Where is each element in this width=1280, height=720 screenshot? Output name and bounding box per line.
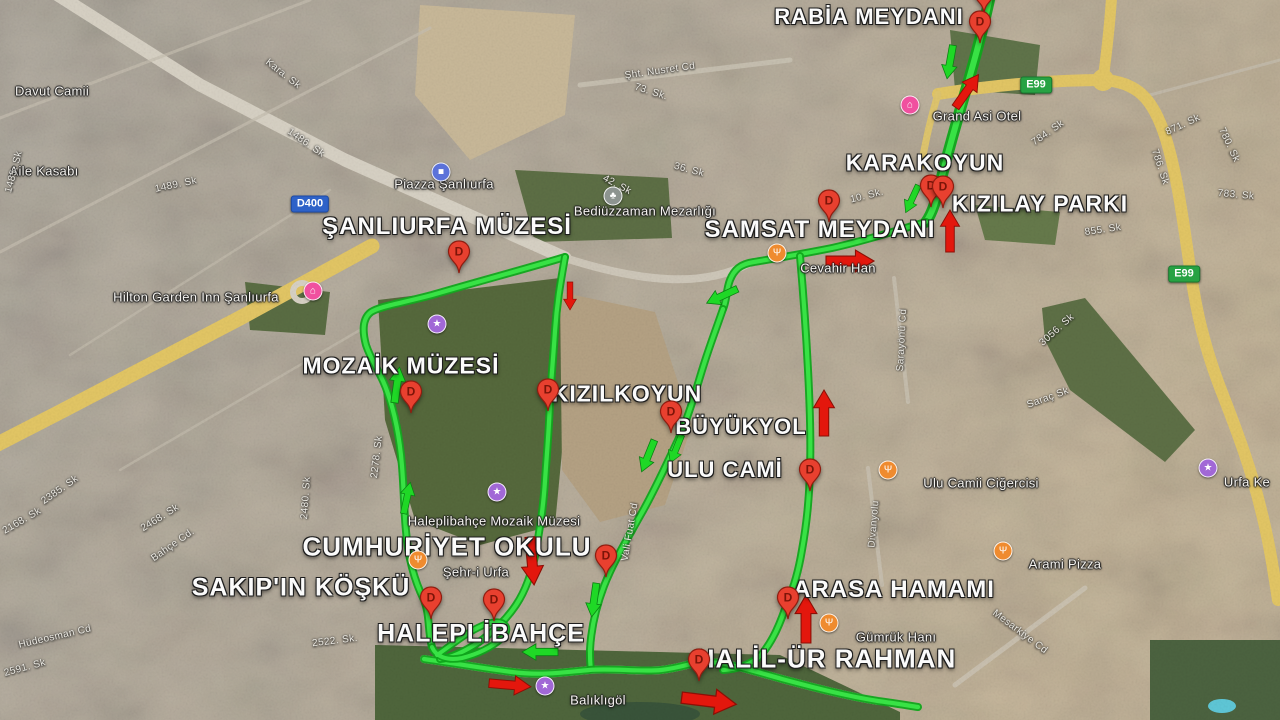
street-label: Saraç Sk: [1026, 385, 1071, 410]
svg-text:D: D: [976, 15, 985, 29]
map-marker-pin[interactable]: D: [594, 544, 618, 578]
map-marker-pin[interactable]: D: [447, 240, 471, 274]
street-label: 780. Sk: [1216, 126, 1241, 164]
hotel-icon[interactable]: ⌂: [901, 96, 920, 115]
restaurant-icon[interactable]: Ψ: [768, 244, 787, 263]
poi-label[interactable]: Davut Camii: [15, 84, 89, 99]
street-label: Kara. Sk: [263, 57, 303, 91]
street-label: 73. Sk.: [633, 82, 669, 103]
map-marker-pin[interactable]: D: [931, 175, 955, 209]
poi-label[interactable]: Grand Asi Otel: [933, 109, 1022, 124]
street-label: 36. Sk: [673, 161, 706, 180]
map-marker-pin[interactable]: D: [776, 586, 800, 620]
map-overlay: RABİA MEYDANIKARAKOYUNKIZILAY PARKISAMSA…: [0, 0, 1280, 720]
svg-text:D: D: [695, 653, 704, 667]
street-label: Hüdeosman Cd: [18, 623, 93, 650]
street-label: 1486. Sk: [285, 126, 326, 159]
street-label: 783. Sk: [1217, 188, 1255, 202]
street-label: 3056. Sk: [1037, 312, 1076, 349]
map-marker-pin[interactable]: D: [419, 586, 443, 620]
street-label: 2591. Sk: [3, 657, 47, 679]
map-marker-pin[interactable]: D: [536, 378, 560, 412]
road-badge-e99: E99: [1020, 77, 1052, 94]
place-label: ARASA HAMAMI: [793, 576, 995, 604]
street-label: Bahçe Cd.: [149, 526, 197, 564]
cemetery-icon[interactable]: ♣: [604, 187, 623, 206]
place-label: ŞANLIURFA MÜZESİ: [322, 213, 572, 241]
street-label: 2168. Sk: [1, 506, 43, 537]
svg-text:D: D: [939, 180, 948, 194]
place-label: SAKIP'IN KÖŞKÜ: [192, 574, 411, 603]
shopping-icon[interactable]: ■: [432, 163, 451, 182]
poi-label[interactable]: Arami Pizza: [1029, 557, 1102, 572]
svg-text:D: D: [544, 383, 553, 397]
place-label: KARAKOYUN: [846, 150, 1005, 177]
attraction-icon[interactable]: ★: [536, 677, 555, 696]
street-label: 786. Sk: [1149, 148, 1171, 186]
svg-text:D: D: [407, 385, 416, 399]
street-label: 2278. Sk: [369, 435, 385, 479]
svg-text:D: D: [806, 463, 815, 477]
place-label: RABİA MEYDANI: [774, 4, 963, 30]
restaurant-icon[interactable]: Ψ: [820, 614, 839, 633]
svg-text:D: D: [602, 549, 611, 563]
satellite-map[interactable]: RABİA MEYDANIKARAKOYUNKIZILAY PARKISAMSA…: [0, 0, 1280, 720]
map-marker-pin[interactable]: D: [687, 648, 711, 682]
map-marker-pin[interactable]: D: [659, 400, 683, 434]
map-marker-pin[interactable]: D: [798, 458, 822, 492]
street-label: Vali Fuat Cd: [619, 502, 640, 562]
place-label: MOZAİK MÜZESİ: [303, 353, 500, 380]
restaurant-icon[interactable]: Ψ: [879, 461, 898, 480]
attraction-icon[interactable]: ★: [428, 315, 447, 334]
place-label: KIZILAY PARKI: [952, 191, 1128, 218]
svg-text:D: D: [667, 405, 676, 419]
road-badge-e99: E99: [1168, 266, 1200, 283]
svg-text:D: D: [490, 593, 499, 607]
street-label: Divanyolu: [866, 500, 881, 548]
map-marker-pin[interactable]: D: [399, 380, 423, 414]
poi-label[interactable]: Ulu Camii Ciğercisi: [923, 476, 1039, 491]
map-marker-pin[interactable]: D: [817, 189, 841, 223]
restaurant-icon[interactable]: Ψ: [994, 542, 1013, 561]
street-label: Şht. Nusret Cd: [624, 61, 696, 82]
svg-text:D: D: [455, 245, 464, 259]
place-label: ULU CAMİ: [667, 457, 783, 483]
street-label: 2468. Sk: [139, 502, 181, 534]
street-label: Sarayönü Cd: [895, 308, 909, 371]
street-label: 10. Sk.: [849, 187, 885, 206]
poi-label[interactable]: Şehr-i Urfa: [443, 565, 509, 580]
street-label: Mesarkiye Cd: [990, 608, 1049, 656]
attraction-icon[interactable]: ★: [1199, 459, 1218, 478]
street-label: 855. Sk: [1084, 222, 1122, 238]
street-label: 2385. Sk: [39, 473, 80, 506]
poi-label[interactable]: Bediüzzaman Mezarlığı: [574, 204, 716, 219]
map-marker-pin[interactable]: D: [968, 10, 992, 44]
poi-label[interactable]: Cevahir Han: [800, 261, 876, 276]
road-badge-d400: D400: [291, 196, 329, 213]
svg-text:D: D: [825, 194, 834, 208]
svg-text:D: D: [427, 591, 436, 605]
poi-label[interactable]: Haleplibahçe Mozaik Müzesi: [408, 514, 581, 529]
poi-label[interactable]: Balıklıgöl: [570, 693, 626, 708]
street-label: 2480. Sk: [299, 476, 313, 519]
place-label: BÜYÜKYOL: [675, 414, 806, 440]
street-label: 784. Sk: [1030, 118, 1066, 148]
attraction-icon[interactable]: ★: [488, 483, 507, 502]
restaurant-icon[interactable]: Ψ: [409, 551, 428, 570]
poi-label[interactable]: Urfa Ke: [1224, 475, 1270, 490]
poi-label[interactable]: Hilton Garden Inn Şanlıurfa: [113, 290, 279, 305]
street-label: 1489. Sk: [154, 175, 198, 195]
map-marker-pin[interactable]: D: [482, 588, 506, 622]
svg-text:D: D: [784, 591, 793, 605]
place-label: CUMHURİYET OKULU: [303, 532, 592, 563]
street-label: 2522. Sk.: [312, 633, 359, 650]
hotel-icon[interactable]: ⌂: [304, 282, 323, 301]
street-label: 871. Sk: [1164, 112, 1202, 137]
poi-label[interactable]: Gümrük Hanı: [856, 630, 937, 645]
place-label: HALİL-ÜR RAHMAN: [696, 644, 957, 675]
place-label: HALEPLİBAHÇE: [377, 620, 585, 649]
